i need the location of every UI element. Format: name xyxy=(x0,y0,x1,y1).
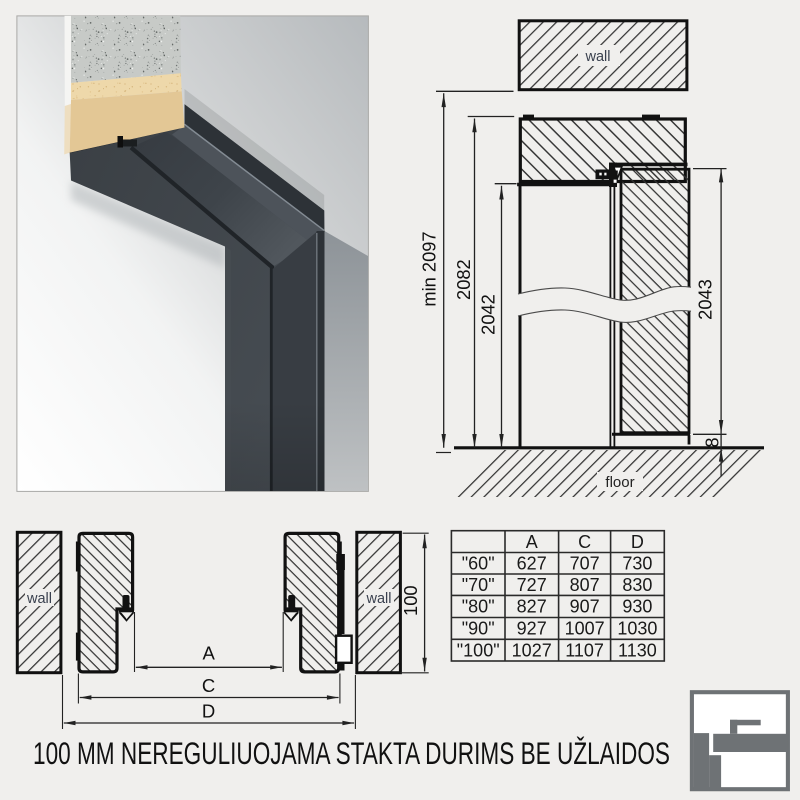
svg-text:627: 627 xyxy=(517,554,547,574)
svg-text:A: A xyxy=(526,532,538,552)
svg-text:830: 830 xyxy=(622,575,652,595)
svg-text:2043: 2043 xyxy=(694,279,715,320)
svg-text:1030: 1030 xyxy=(617,619,657,639)
svg-text:C: C xyxy=(202,675,215,696)
svg-text:"90": "90" xyxy=(462,619,495,639)
svg-text:"80": "80" xyxy=(462,597,495,617)
svg-text:"60": "60" xyxy=(462,554,495,574)
svg-text:wall: wall xyxy=(26,591,52,607)
svg-text:2082: 2082 xyxy=(453,259,474,300)
svg-text:730: 730 xyxy=(622,554,652,574)
svg-text:A: A xyxy=(203,643,216,664)
svg-text:727: 727 xyxy=(517,575,547,595)
svg-text:floor: floor xyxy=(605,474,634,491)
svg-text:1130: 1130 xyxy=(618,641,657,661)
svg-text:100 MM NEREGULIUOJAMA STAKTA D: 100 MM NEREGULIUOJAMA STAKTA DURIMS BE U… xyxy=(33,735,670,771)
svg-text:"100": "100" xyxy=(457,641,500,661)
svg-text:1107: 1107 xyxy=(565,641,604,661)
svg-text:907: 907 xyxy=(570,597,600,617)
svg-text:8: 8 xyxy=(701,437,722,447)
svg-text:wall: wall xyxy=(366,591,392,607)
svg-text:2042: 2042 xyxy=(477,294,498,335)
svg-text:C: C xyxy=(578,532,591,552)
svg-text:1027: 1027 xyxy=(512,641,552,661)
svg-text:D: D xyxy=(202,701,215,722)
svg-text:min 2097: min 2097 xyxy=(418,231,439,306)
svg-text:927: 927 xyxy=(517,619,547,639)
svg-text:wall: wall xyxy=(585,49,611,65)
svg-text:100: 100 xyxy=(400,585,421,616)
svg-text:1007: 1007 xyxy=(565,619,605,639)
svg-text:807: 807 xyxy=(570,575,600,595)
svg-text:930: 930 xyxy=(622,597,652,617)
svg-text:707: 707 xyxy=(570,554,600,574)
svg-text:D: D xyxy=(631,532,644,552)
svg-text:"70": "70" xyxy=(462,575,495,595)
svg-text:827: 827 xyxy=(517,597,547,617)
